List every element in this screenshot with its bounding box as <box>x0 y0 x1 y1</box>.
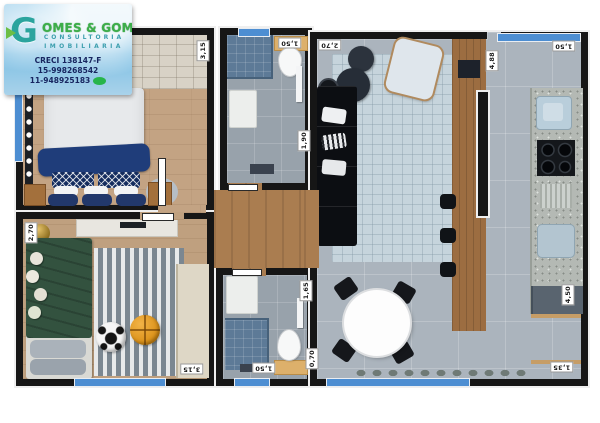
vanity-sink-2 <box>226 276 258 314</box>
phone-number-1: 15-998268542 <box>4 66 132 76</box>
bath-mat-1 <box>250 164 274 174</box>
navy-cushion <box>82 194 112 206</box>
bar-stool <box>440 262 456 277</box>
desk-item <box>120 222 146 228</box>
nightstand-left <box>24 184 46 206</box>
toilet-shelf-2 <box>274 360 308 375</box>
door-leaf <box>142 213 174 221</box>
kitchen-sink <box>537 224 575 258</box>
dimension-label: 1,50 <box>552 41 575 52</box>
dimension-label: 4,50 <box>562 284 575 305</box>
dimension-label: 1,50 <box>252 363 275 374</box>
navy-cushion <box>116 194 146 206</box>
brand-subtitle: CONSULTORIA IMOBILIARIA <box>38 34 130 50</box>
dining-table <box>344 290 410 356</box>
striped-rug <box>94 248 184 376</box>
sofa-pillow <box>321 159 346 176</box>
whatsapp-icon <box>93 77 106 85</box>
decor-pillow-ball <box>30 252 43 265</box>
dimension-label: 1,35 <box>550 362 573 373</box>
bed-2-pillow <box>30 359 86 375</box>
bar-stool <box>440 228 456 243</box>
cooktop <box>537 140 575 176</box>
dish-rack <box>540 184 572 208</box>
gomes-logo-g-icon: G <box>10 12 40 52</box>
towel-2 <box>297 298 303 328</box>
shower-1 <box>227 35 273 79</box>
logo-triangle-icon <box>6 27 16 39</box>
window-bathroom-1 <box>238 28 270 37</box>
fridge <box>531 286 583 314</box>
toilet-2 <box>278 330 300 360</box>
dimension-label: 1,90 <box>298 130 311 151</box>
sofa-pillow <box>321 106 347 124</box>
bed-2-pillow <box>30 340 86 358</box>
dimension-label: 1,65 <box>300 280 313 301</box>
window-bedroom-2 <box>74 378 166 387</box>
dimension-label: 1,50 <box>278 38 301 49</box>
door-leaf <box>232 269 262 276</box>
phone-number-2: 11-948925183 <box>30 76 91 85</box>
counter-edge <box>531 314 581 318</box>
dimension-label: 4,88 <box>486 50 499 71</box>
navy-cushion <box>48 194 78 206</box>
brand-subtitle-line-1: CONSULTORIA <box>38 34 130 41</box>
decor-pillow-ball <box>26 270 39 283</box>
dimension-label: 0,70 <box>306 348 319 369</box>
dimension-label: 3,15 <box>180 364 203 375</box>
window-bedroom-1 <box>14 88 23 162</box>
door-opening <box>304 190 319 268</box>
dimension-label: 3,15 <box>197 40 210 61</box>
door-leaf <box>158 158 166 206</box>
vanity-sink-1 <box>229 90 257 128</box>
brand-name: OMES & GOMES <box>42 21 132 35</box>
tv <box>458 60 480 78</box>
floor-plan-image: 3,15 1,50 1,90 2,70 4,88 1,50 2,70 3,15 … <box>0 0 600 423</box>
wardrobe <box>176 264 209 378</box>
basketball <box>130 315 160 345</box>
door-leaf <box>228 184 258 191</box>
partial-wall <box>478 92 488 216</box>
dimension-label: 2,70 <box>25 222 38 243</box>
window-bathroom-2 <box>234 378 270 387</box>
decor-pillow-ball <box>28 306 41 319</box>
brand-subtitle-line-2: IMOBILIARIA <box>38 43 130 50</box>
laundry-sink-basin <box>543 103 563 121</box>
contact-block: CRECI 138147-F 15-998268542 11-948925183 <box>4 56 132 86</box>
creci-number: CRECI 138147-F <box>4 56 132 66</box>
phone-number-2-row: 11-948925183 <box>4 76 132 86</box>
decor-pillow-ball <box>34 288 47 301</box>
bar-stool <box>440 194 456 209</box>
agency-logo-card: G OMES & GOMES CONSULTORIA IMOBILIARIA C… <box>4 4 132 95</box>
towel-1 <box>296 66 302 102</box>
soccer-ball <box>96 322 126 352</box>
dimension-label: 2,70 <box>318 40 341 51</box>
window-dining <box>326 378 470 387</box>
hallway-floor <box>214 190 310 268</box>
